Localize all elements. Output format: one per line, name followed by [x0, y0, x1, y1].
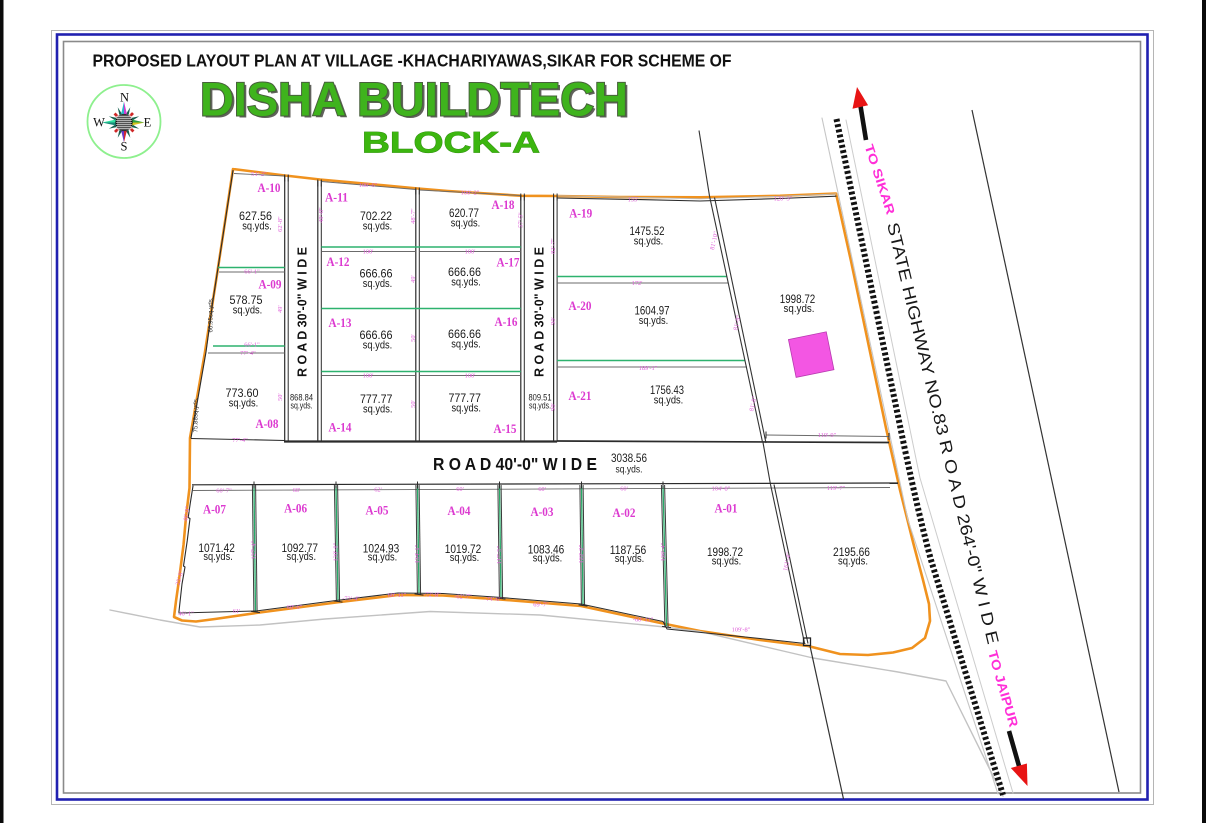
svg-text:sq.yds.: sq.yds.: [229, 398, 259, 410]
svg-text:A-06: A-06: [284, 500, 307, 515]
svg-text:sq.yds.: sq.yds.: [287, 551, 317, 563]
svg-text:66'-1": 66'-1": [244, 342, 260, 349]
svg-text:sq.yds.: sq.yds.: [615, 553, 645, 565]
svg-text:sq.yds.: sq.yds.: [363, 340, 393, 352]
svg-text:A-13: A-13: [329, 315, 352, 330]
svg-text:-72'-8": -72'-8": [423, 592, 441, 599]
svg-text:60'-11": 60'-11": [388, 592, 407, 599]
svg-text:119'-9": 119'-9": [818, 432, 837, 439]
svg-text:A-01: A-01: [715, 501, 738, 516]
svg-text:A-08: A-08: [256, 416, 279, 431]
svg-text:134'-1": 134'-1": [414, 544, 421, 563]
svg-text:W: W: [93, 116, 105, 130]
svg-text:-73'-4": -73'-4": [342, 595, 360, 602]
svg-text:57'-5": 57'-5": [517, 212, 524, 228]
svg-text:A-18: A-18: [492, 197, 515, 212]
svg-text:90': 90': [550, 403, 557, 411]
svg-text:48'-7": 48'-7": [410, 208, 417, 224]
svg-text:62': 62': [374, 487, 382, 494]
svg-text:60': 60': [620, 486, 628, 493]
svg-text:100': 100': [465, 248, 476, 255]
svg-text:sq.yds.: sq.yds.: [242, 221, 272, 233]
svg-text:60'-6": 60'-6": [287, 604, 303, 611]
svg-text:sq.yds.: sq.yds.: [634, 236, 664, 248]
svg-text:sq.yds.: sq.yds.: [639, 315, 669, 327]
svg-text:-74'-6": -74'-6": [484, 596, 502, 603]
svg-text:sq.yds.: sq.yds.: [838, 556, 868, 568]
svg-text:61': 61': [233, 608, 241, 615]
svg-text:109'-8": 109'-8": [732, 627, 751, 634]
svg-text:BLOCK-A: BLOCK-A: [362, 127, 540, 160]
svg-text:sq.yds.: sq.yds.: [616, 464, 643, 476]
svg-text:77'-4": 77'-4": [240, 350, 256, 357]
svg-text:122'-2": 122'-2": [578, 544, 585, 563]
svg-text:A-16: A-16: [495, 314, 518, 329]
svg-text:100': 100': [363, 372, 374, 379]
svg-text:75.88sq.yds.: 75.88sq.yds.: [193, 397, 200, 432]
svg-text:sq.yds.: sq.yds.: [451, 218, 481, 230]
svg-text:100': 100': [363, 248, 374, 255]
svg-text:A-20: A-20: [569, 298, 592, 313]
svg-text:sq.yds.: sq.yds.: [451, 403, 481, 415]
svg-text:sq.yds.: sq.yds.: [784, 303, 815, 315]
svg-text:sq.yds.: sq.yds.: [451, 339, 481, 351]
svg-text:66.95sq.yds.: 66.95sq.yds.: [208, 297, 215, 332]
svg-text:49': 49': [277, 305, 284, 313]
svg-text:172': 172': [632, 280, 643, 287]
svg-text:60': 60': [293, 487, 301, 494]
svg-text:60'-7": 60'-7": [216, 487, 232, 494]
svg-text:sq.yds.: sq.yds.: [368, 552, 398, 564]
svg-text:130'-8": 130'-8": [333, 542, 340, 561]
svg-text:A-04: A-04: [448, 503, 471, 518]
svg-text:104'-8": 104'-8": [712, 486, 731, 493]
svg-text:127'-4": 127'-4": [251, 540, 258, 559]
svg-text:A-19: A-19: [569, 206, 592, 221]
svg-text:sq.yds.: sq.yds.: [712, 556, 742, 568]
svg-text:117'-5": 117'-5": [496, 545, 503, 564]
svg-text:-60'-11": -60'-11": [633, 617, 654, 624]
svg-text:A-02: A-02: [613, 505, 636, 520]
svg-text:60': 60': [538, 486, 546, 493]
svg-text:60': 60': [456, 486, 464, 493]
svg-text:sq.yds.: sq.yds.: [654, 395, 684, 407]
svg-text:-62'-7": -62'-7": [454, 594, 472, 601]
svg-text:sq.yds.: sq.yds.: [363, 404, 393, 416]
svg-text:50': 50': [410, 334, 417, 342]
svg-text:R O A D 30'-0" W I D E: R O A D 30'-0" W I D E: [532, 247, 547, 377]
svg-text:A-07: A-07: [203, 501, 226, 516]
svg-text:sq.yds.: sq.yds.: [363, 278, 393, 290]
svg-text:A-11: A-11: [325, 190, 348, 205]
svg-text:90': 90': [550, 317, 557, 325]
svg-text:50': 50': [410, 400, 417, 408]
svg-text:A-21: A-21: [569, 388, 592, 403]
svg-text:82'-7": 82'-7": [550, 238, 557, 254]
svg-text:189'-1": 189'-1": [639, 365, 658, 372]
svg-text:100'-2": 100'-2": [461, 190, 480, 197]
svg-text:R O A D 30'-0" W I D E: R O A D 30'-0" W I D E: [295, 247, 310, 377]
svg-text:S: S: [121, 140, 128, 154]
svg-text:49'-8": 49'-8": [318, 207, 325, 223]
svg-text:100'-6": 100'-6": [359, 182, 378, 189]
svg-text:sq.yds.: sq.yds.: [291, 400, 313, 410]
svg-text:A-03: A-03: [531, 504, 554, 519]
svg-text:49': 49': [410, 275, 417, 283]
svg-text:155': 155': [628, 196, 639, 203]
svg-text:sq.yds.: sq.yds.: [451, 277, 481, 289]
svg-text:N: N: [120, 91, 129, 105]
svg-text:sq.yds.: sq.yds.: [450, 552, 480, 564]
svg-text:62'-8": 62'-8": [277, 216, 284, 232]
svg-text:126'-4": 126'-4": [660, 542, 667, 561]
svg-text:120'-3": 120'-3": [774, 195, 793, 202]
svg-text:sq.yds.: sq.yds.: [203, 551, 233, 563]
svg-text:119'-7": 119'-7": [827, 485, 846, 492]
svg-text:sq.yds.: sq.yds.: [363, 221, 393, 233]
svg-text:66'-1": 66'-1": [244, 269, 260, 276]
svg-text:A-09: A-09: [259, 277, 282, 292]
svg-text:A-10: A-10: [258, 180, 281, 195]
svg-text:A-15: A-15: [494, 421, 517, 436]
svg-text:A-17: A-17: [497, 255, 520, 270]
svg-text:A-12: A-12: [327, 254, 350, 269]
svg-text:51'-2": 51'-2": [251, 171, 267, 178]
svg-text:sq.yds.: sq.yds.: [533, 553, 563, 565]
svg-text:77'-4": 77'-4": [232, 437, 248, 444]
svg-text:46'-1": 46'-1": [178, 611, 194, 618]
svg-text:A-05: A-05: [366, 503, 389, 518]
svg-text:E: E: [144, 116, 152, 130]
svg-text:69'-7": 69'-7": [533, 602, 549, 609]
svg-text:A-14: A-14: [329, 420, 352, 435]
svg-text:100': 100': [465, 372, 476, 379]
svg-text:sq.yds.: sq.yds.: [233, 305, 263, 317]
svg-text:PROPOSED LAYOUT PLAN AT VILLAG: PROPOSED LAYOUT PLAN AT VILLAGE -KHACHAR…: [93, 51, 732, 71]
svg-text:sq.yds.: sq.yds.: [529, 400, 551, 410]
svg-text:50': 50': [277, 393, 284, 401]
svg-text:DISHA BUILDTECH: DISHA BUILDTECH: [200, 73, 628, 126]
svg-text:R O A D 40'-0" W I D E: R O A D 40'-0" W I D E: [433, 454, 597, 474]
